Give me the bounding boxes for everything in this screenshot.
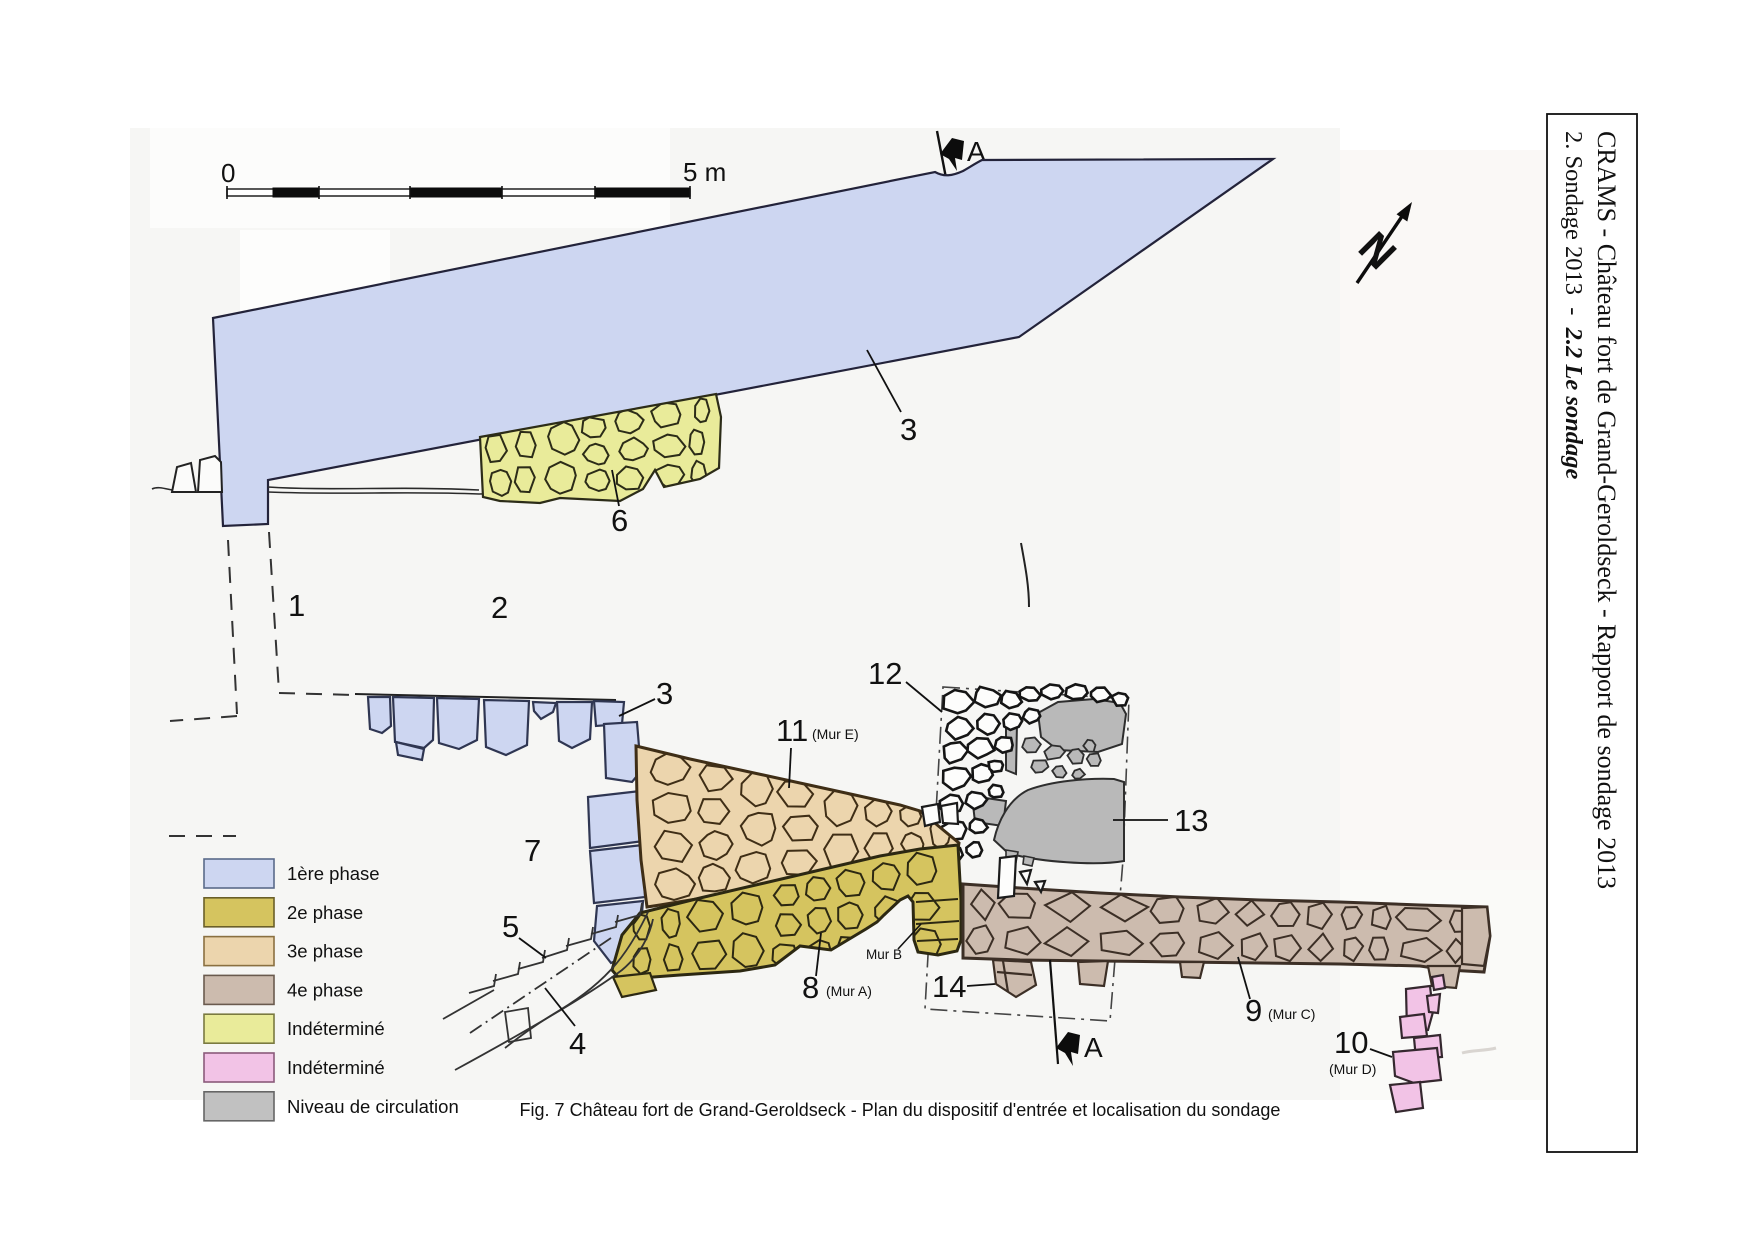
svg-text:3: 3 bbox=[900, 412, 917, 447]
svg-text:7: 7 bbox=[524, 833, 541, 868]
svg-text:3e phase: 3e phase bbox=[287, 941, 363, 962]
svg-text:(Mur D): (Mur D) bbox=[1329, 1061, 1376, 1077]
svg-text:4e phase: 4e phase bbox=[287, 979, 363, 1000]
svg-text:(Mur C): (Mur C) bbox=[1268, 1006, 1315, 1022]
svg-text:(Mur A): (Mur A) bbox=[826, 983, 872, 999]
svg-text:1ère phase: 1ère phase bbox=[287, 863, 380, 884]
svg-text:11: 11 bbox=[776, 713, 808, 748]
svg-text:5 m: 5 m bbox=[683, 157, 726, 187]
svg-text:2. Sondage 2013 - 2.2 Le son: 2. Sondage 2013 - 2.2 Le sondage bbox=[1560, 131, 1587, 480]
svg-text:13: 13 bbox=[1174, 803, 1208, 838]
svg-text:1: 1 bbox=[288, 588, 305, 623]
svg-text:Niveau de circulation: Niveau de circulation bbox=[287, 1096, 459, 1117]
svg-text:14: 14 bbox=[932, 969, 966, 1004]
svg-text:8: 8 bbox=[802, 970, 819, 1005]
svg-text:10: 10 bbox=[1334, 1025, 1368, 1060]
svg-text:Mur B: Mur B bbox=[866, 947, 902, 962]
svg-text:Indéterminé: Indéterminé bbox=[287, 1018, 385, 1039]
svg-text:5: 5 bbox=[502, 909, 519, 944]
svg-text:2e phase: 2e phase bbox=[287, 902, 363, 923]
svg-text:Indéterminé: Indéterminé bbox=[287, 1057, 385, 1078]
svg-text:(Mur E): (Mur E) bbox=[812, 726, 859, 742]
svg-text:2: 2 bbox=[491, 590, 508, 625]
svg-text:6: 6 bbox=[611, 503, 628, 538]
svg-text:CRAMS - Château fort de Grand-: CRAMS - Château fort de Grand-Geroldseck… bbox=[1592, 131, 1621, 889]
svg-text:9: 9 bbox=[1245, 993, 1262, 1028]
svg-text:3: 3 bbox=[656, 676, 673, 711]
svg-text:4: 4 bbox=[569, 1026, 586, 1061]
svg-text:0: 0 bbox=[221, 158, 235, 188]
svg-text:12: 12 bbox=[868, 656, 902, 691]
svg-text:A: A bbox=[1084, 1032, 1103, 1063]
svg-text:Fig. 7 Château fort de Grand-G: Fig. 7 Château fort de Grand-Geroldseck … bbox=[520, 1100, 1281, 1120]
